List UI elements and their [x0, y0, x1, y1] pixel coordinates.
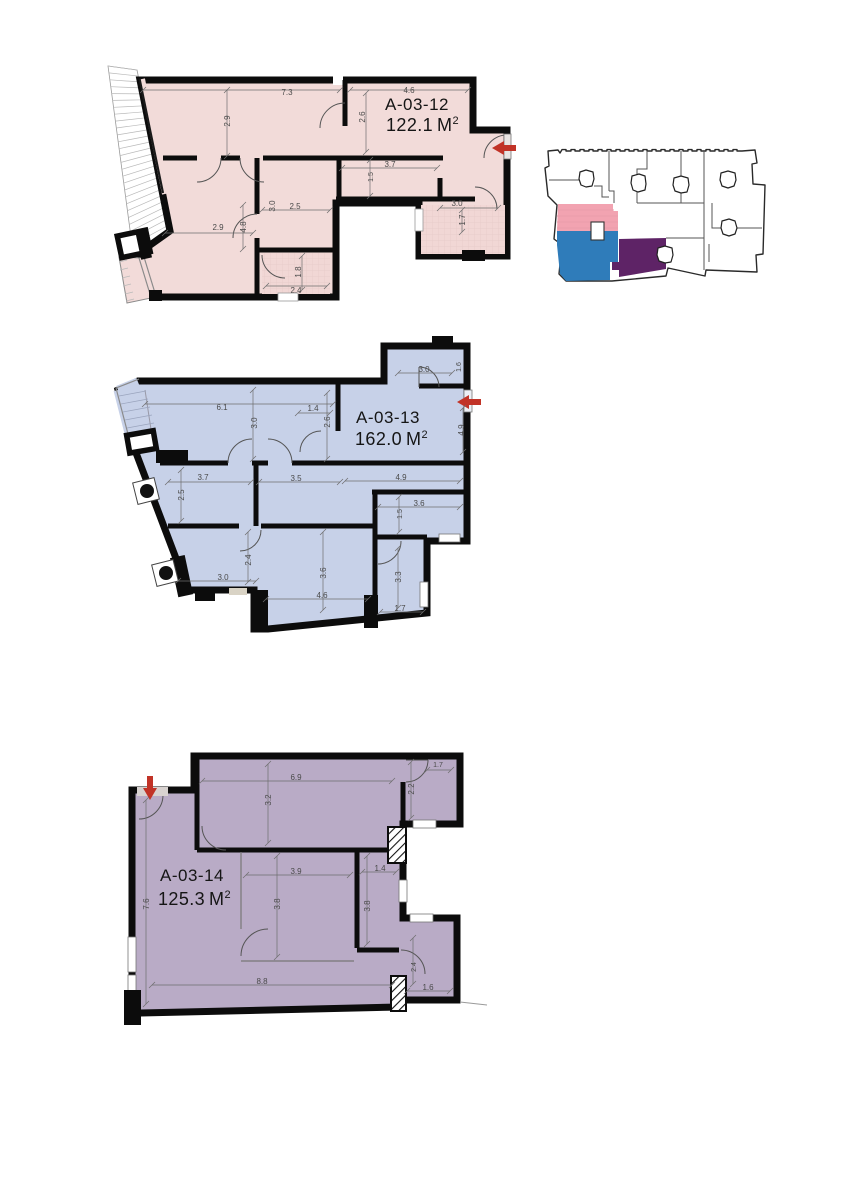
- svg-text:A-03-13: A-03-13: [356, 408, 420, 427]
- svg-text:3.0: 3.0: [250, 417, 259, 429]
- svg-text:125.3 M2: 125.3 M2: [158, 889, 231, 909]
- svg-text:2.4: 2.4: [290, 286, 302, 295]
- svg-text:1.7: 1.7: [433, 762, 443, 769]
- svg-text:4.9: 4.9: [457, 424, 466, 436]
- svg-text:1.7: 1.7: [458, 214, 467, 226]
- svg-text:6.9: 6.9: [290, 773, 302, 782]
- svg-text:6.1: 6.1: [216, 403, 228, 412]
- svg-text:3.7: 3.7: [384, 160, 396, 169]
- svg-text:2.5: 2.5: [289, 202, 301, 211]
- svg-text:7.6: 7.6: [142, 898, 151, 910]
- svg-text:1.4: 1.4: [307, 404, 319, 413]
- svg-text:3.2: 3.2: [264, 794, 273, 806]
- svg-text:2.6: 2.6: [323, 416, 332, 428]
- svg-text:2.2: 2.2: [407, 783, 416, 795]
- svg-text:7.3: 7.3: [281, 88, 293, 97]
- svg-text:3.8: 3.8: [273, 898, 282, 910]
- svg-text:1.4: 1.4: [374, 864, 386, 873]
- svg-text:1.6: 1.6: [456, 362, 463, 372]
- svg-text:1.5: 1.5: [368, 172, 375, 182]
- svg-text:3.6: 3.6: [319, 567, 328, 579]
- svg-text:2.9: 2.9: [223, 115, 232, 127]
- svg-text:3.0: 3.0: [451, 199, 463, 208]
- svg-text:3.0: 3.0: [217, 573, 229, 582]
- svg-text:3.9: 3.9: [290, 867, 302, 876]
- svg-text:1.7: 1.7: [394, 604, 406, 613]
- svg-text:4.6: 4.6: [403, 86, 415, 95]
- svg-text:2.5: 2.5: [177, 489, 186, 501]
- svg-text:3.0: 3.0: [268, 200, 277, 212]
- svg-text:3.7: 3.7: [197, 473, 209, 482]
- svg-text:162.0 M2: 162.0 M2: [355, 429, 428, 449]
- svg-text:8.8: 8.8: [256, 977, 268, 986]
- svg-text:2.6: 2.6: [358, 111, 367, 123]
- svg-text:3.3: 3.3: [394, 571, 403, 583]
- svg-text:1.5: 1.5: [397, 509, 404, 519]
- svg-text:A-03-14: A-03-14: [160, 866, 224, 885]
- svg-text:4.6: 4.6: [316, 591, 328, 600]
- svg-text:1.8: 1.8: [294, 266, 303, 278]
- svg-text:2.4: 2.4: [244, 554, 253, 566]
- svg-text:3.0: 3.0: [418, 365, 430, 374]
- svg-text:3.5: 3.5: [290, 474, 302, 483]
- svg-text:4.8: 4.8: [239, 221, 248, 233]
- svg-text:122.1 M2: 122.1 M2: [386, 115, 459, 135]
- svg-text:3.6: 3.6: [413, 499, 425, 508]
- svg-text:2.4: 2.4: [411, 962, 418, 972]
- svg-text:A-03-12: A-03-12: [385, 95, 449, 114]
- svg-text:3.8: 3.8: [363, 900, 372, 912]
- svg-text:1.6: 1.6: [422, 983, 434, 992]
- svg-text:2.9: 2.9: [212, 223, 224, 232]
- svg-text:4.9: 4.9: [395, 473, 407, 482]
